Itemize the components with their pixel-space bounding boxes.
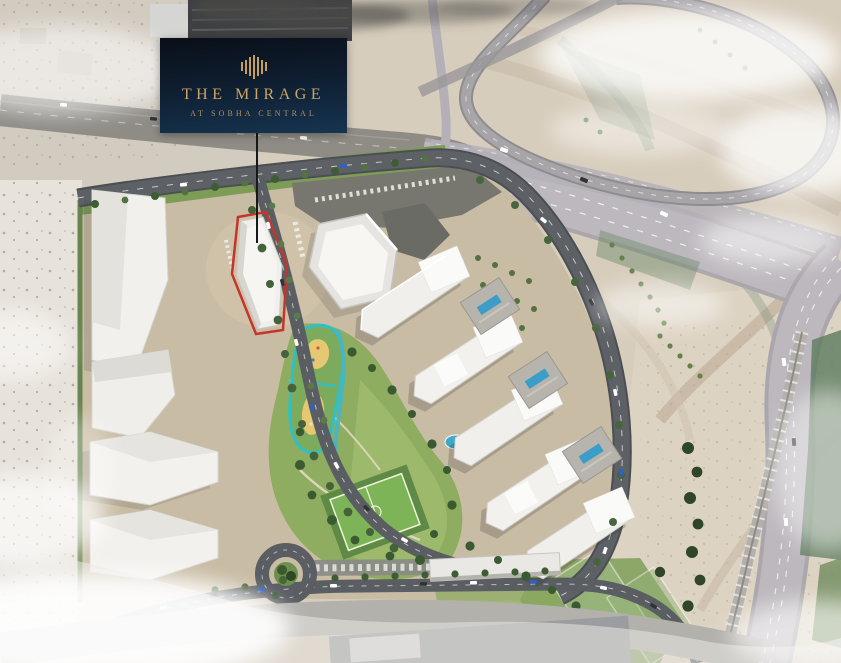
masterplan-map	[0, 0, 841, 663]
project-subtitle: AT SOBHA CENTRAL	[190, 110, 317, 118]
masterplan-screenshot: THE MIRAGE AT SOBHA CENTRAL	[0, 0, 841, 663]
sobha-skyline-bars-icon	[241, 54, 267, 80]
project-label-card: THE MIRAGE AT SOBHA CENTRAL	[160, 38, 347, 133]
project-title: THE MIRAGE	[182, 87, 325, 103]
leader-line	[256, 131, 258, 243]
